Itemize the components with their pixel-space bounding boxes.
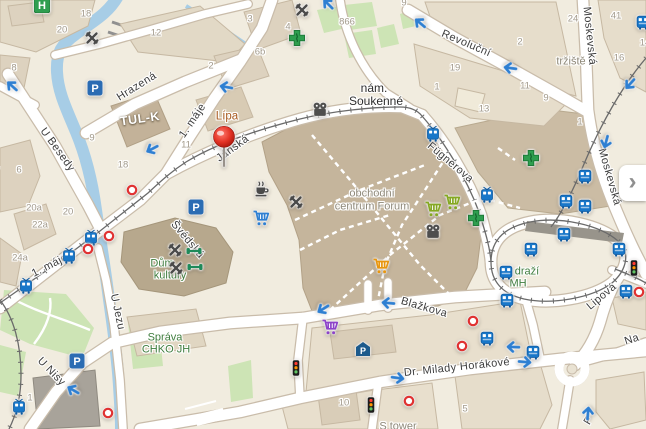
expand-panel-button[interactable]: ›: [619, 165, 646, 201]
map-canvas[interactable]: HrazenáU Besedy1. máje1. májeJánskáŠvéds…: [0, 0, 646, 429]
map-base-layer: [0, 0, 646, 429]
chevron-right-icon: ›: [629, 168, 637, 196]
dum-kultury-building: [121, 218, 233, 296]
roundabout: [567, 364, 577, 374]
